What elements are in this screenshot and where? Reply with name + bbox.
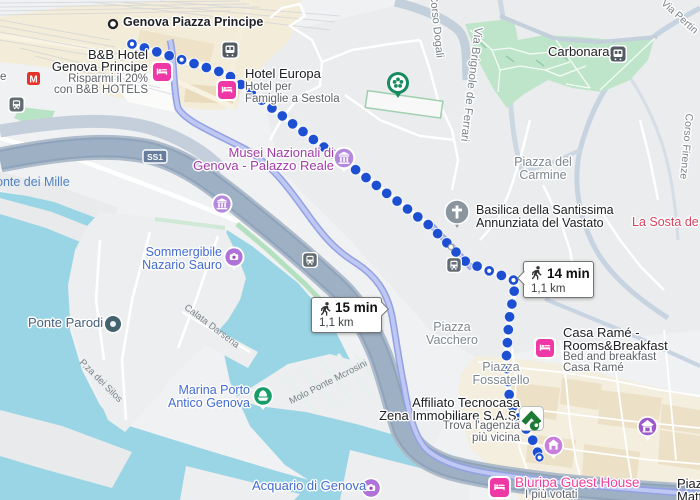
svg-text:M: M	[29, 74, 37, 85]
svg-text:SS1: SS1	[147, 152, 163, 162]
